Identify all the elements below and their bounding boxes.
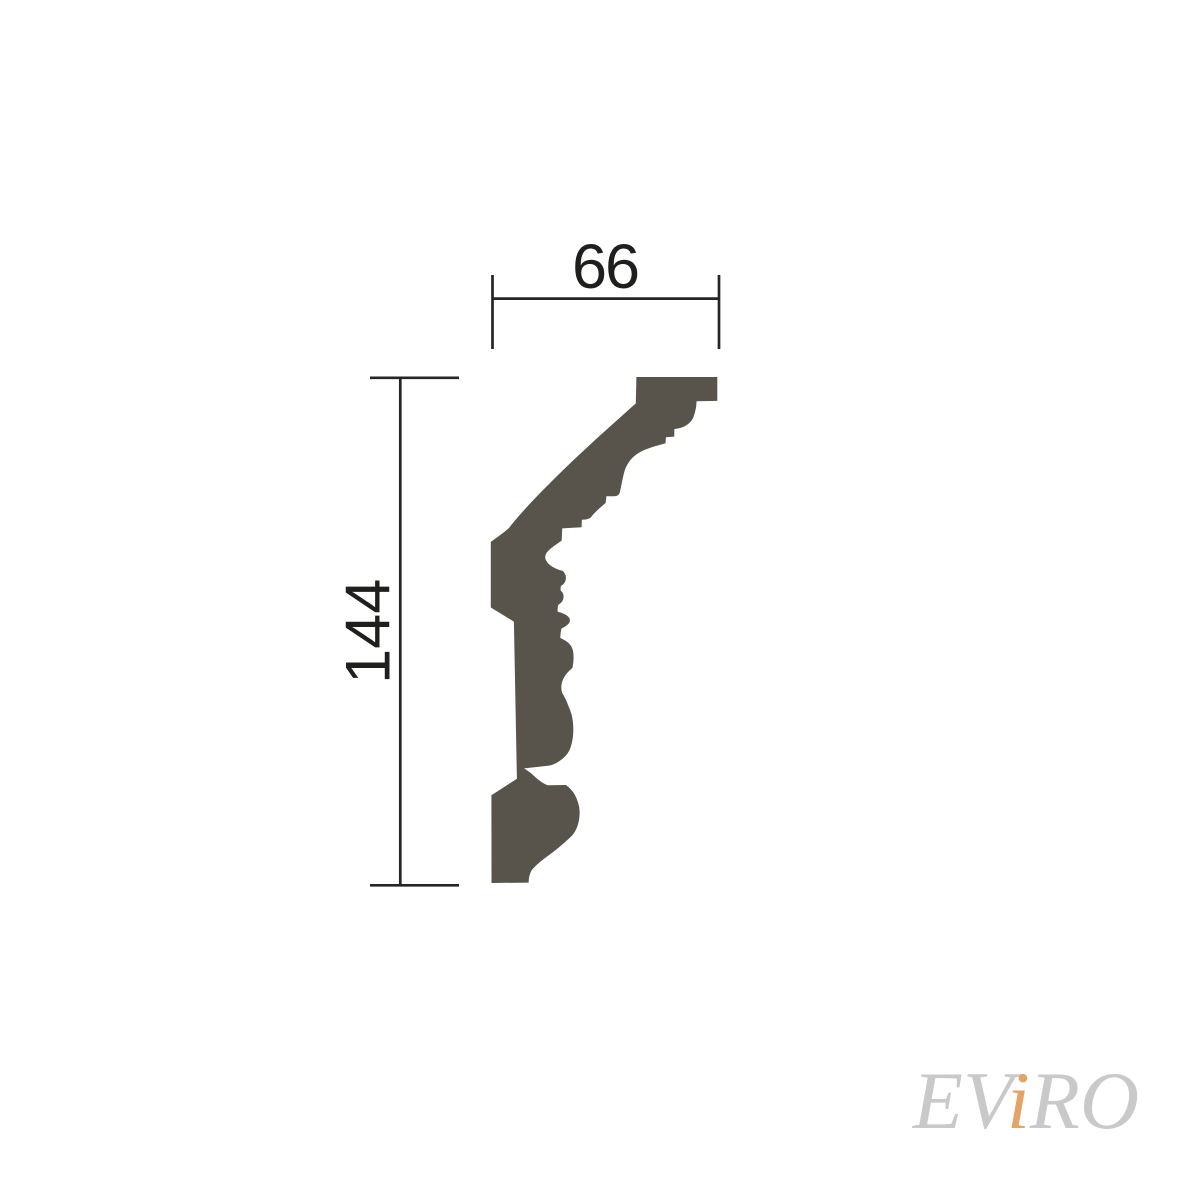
svg-text:144: 144: [334, 579, 404, 684]
svg-text:66: 66: [572, 232, 638, 302]
svg-text:EViRO: EViRO: [912, 1055, 1139, 1146]
